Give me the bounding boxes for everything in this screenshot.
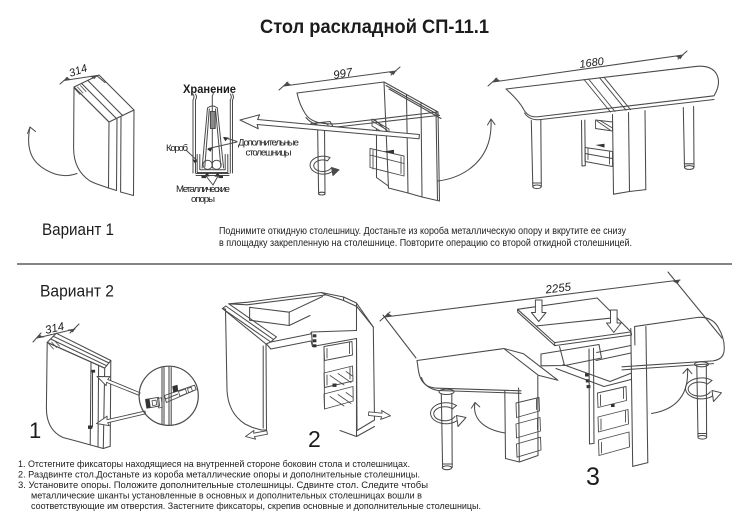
svg-text:1: 1 (29, 418, 41, 443)
svg-text:Поднимите откидную столешницу.: Поднимите откидную столешницу. Достаньте… (219, 225, 626, 237)
svg-text:в площадку закрепленную на сто: в площадку закрепленную на столешнице. П… (219, 238, 632, 249)
svg-text:Хранение: Хранение (183, 84, 236, 96)
svg-text:Вариант 2: Вариант 2 (40, 282, 114, 301)
svg-text:3: 3 (586, 463, 600, 491)
svg-text:997: 997 (332, 67, 354, 82)
svg-text:Вариант 1: Вариант 1 (42, 220, 114, 239)
svg-text:1680: 1680 (579, 56, 606, 71)
svg-text:Короб: Короб (166, 143, 189, 154)
svg-text:1. Отстегните фиксаторы находя: 1. Отстегните фиксаторы находящиеся на в… (18, 459, 410, 470)
svg-text:3. Установите опоры. Положит: 3. Установите опоры. Положите дополнител… (18, 480, 428, 491)
svg-text:2: 2 (308, 426, 321, 452)
svg-text:опоры: опоры (191, 194, 215, 205)
svg-text:2. Раздвинте стол.Достаньте и: 2. Раздвинте стол.Достаньте из короба ме… (18, 470, 420, 481)
svg-text:столешницы: столешницы (246, 148, 292, 159)
svg-text:соответствующие им отверстия.: соответствующие им отверстия. Застегните… (31, 501, 481, 512)
svg-text:металлические шканты установ: металлические шканты установленные в осн… (31, 491, 422, 502)
svg-text:Стол раскладной СП-11.1: Стол раскладной СП-11.1 (260, 16, 489, 38)
